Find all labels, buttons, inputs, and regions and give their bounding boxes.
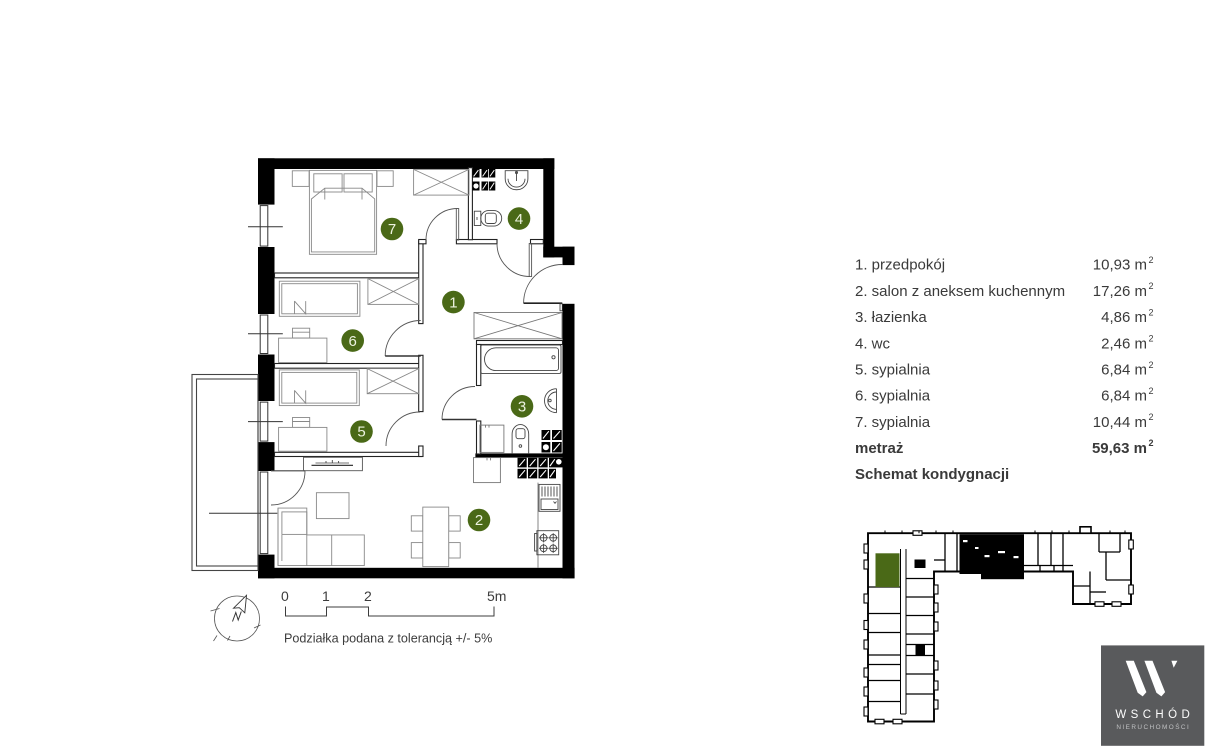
svg-text:10,93 m: 10,93 m (1093, 257, 1147, 274)
svg-text:5. sypialnia: 5. sypialnia (855, 362, 931, 379)
svg-text:1. przedpokój: 1. przedpokój (855, 257, 945, 274)
svg-text:2: 2 (1149, 255, 1154, 265)
svg-text:4,86 m: 4,86 m (1101, 309, 1147, 326)
svg-text:Schemat kondygnacji: Schemat kondygnacji (855, 466, 1009, 483)
svg-text:1: 1 (449, 294, 457, 311)
svg-text:2,46 m: 2,46 m (1101, 335, 1147, 352)
svg-text:0: 0 (281, 588, 289, 604)
svg-text:4: 4 (515, 211, 523, 228)
svg-text:17,26 m: 17,26 m (1093, 283, 1147, 300)
svg-text:2: 2 (1149, 386, 1154, 396)
svg-text:metraż: metraż (855, 440, 903, 457)
svg-text:NIERUCHOMOŚCI: NIERUCHOMOŚCI (1116, 722, 1190, 731)
svg-text:3: 3 (518, 399, 526, 416)
svg-text:5m: 5m (487, 588, 506, 604)
svg-text:10,44 m: 10,44 m (1093, 414, 1147, 431)
svg-text:2: 2 (1149, 412, 1154, 422)
svg-text:7. sypialnia: 7. sypialnia (855, 414, 931, 431)
svg-text:2: 2 (364, 588, 372, 604)
svg-text:5: 5 (357, 424, 365, 441)
svg-text:2: 2 (1149, 438, 1154, 448)
svg-text:6,84 m: 6,84 m (1101, 388, 1147, 405)
svg-text:2: 2 (1149, 307, 1154, 317)
svg-text:59,63 m: 59,63 m (1092, 440, 1147, 457)
svg-text:2: 2 (1149, 334, 1154, 344)
svg-text:6. sypialnia: 6. sypialnia (855, 388, 931, 405)
svg-text:3. łazienka: 3. łazienka (855, 309, 927, 326)
svg-text:2: 2 (1149, 281, 1154, 291)
svg-text:Podziałka podana z tolerancją: Podziałka podana z tolerancją +/- 5% (284, 632, 492, 646)
svg-text:6: 6 (349, 333, 357, 350)
svg-text:7: 7 (388, 221, 396, 238)
svg-text:2: 2 (1149, 360, 1154, 370)
svg-text:4. wc: 4. wc (855, 335, 891, 352)
svg-text:1: 1 (322, 588, 330, 604)
svg-text:2: 2 (475, 512, 483, 529)
svg-text:6,84 m: 6,84 m (1101, 362, 1147, 379)
svg-text:2. salon z aneksem kuchennym: 2. salon z aneksem kuchennym (855, 283, 1065, 300)
svg-text:WSCHÓD: WSCHÓD (1115, 708, 1194, 721)
